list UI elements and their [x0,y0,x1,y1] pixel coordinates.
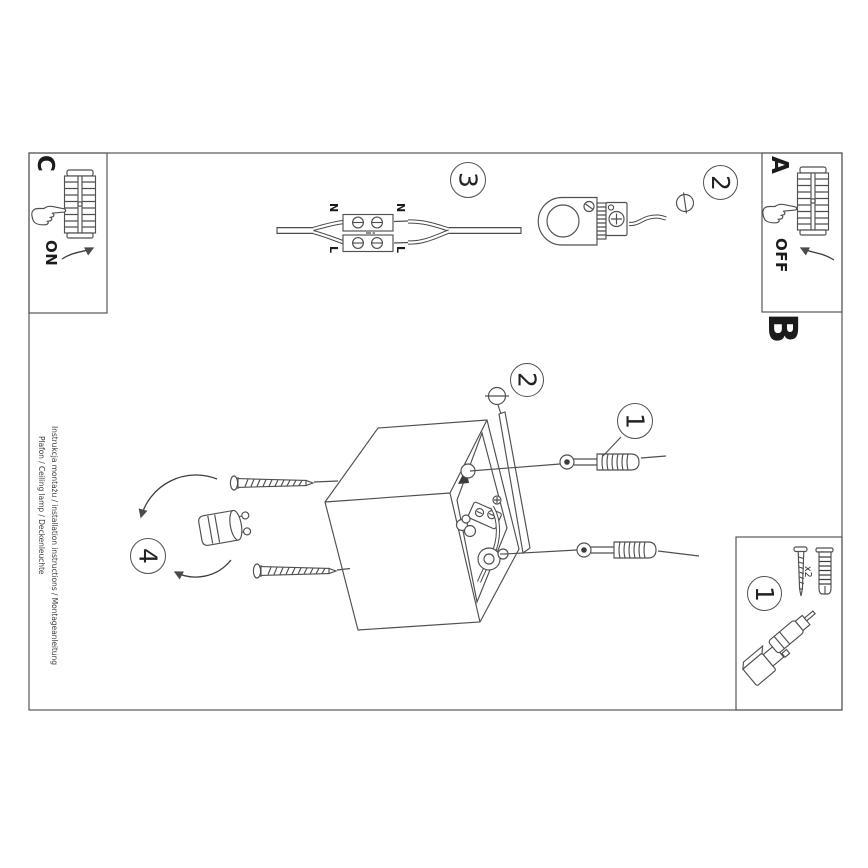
cube-lamp-exploded [141,388,699,631]
off-label: OFF [772,238,790,273]
caption-line-1: Instrukcja montażu / installation instru… [48,426,61,665]
turn-on-arrow-icon [62,248,93,259]
step-badge-1-parts: 1 [747,576,782,611]
rotate-arrow-icon [175,560,231,577]
wire-label-l-right: L [394,246,407,253]
step-badge-3: 3 [450,162,486,198]
step-badge-2: 2 [703,165,738,200]
screw-with-anchor-icon [577,542,656,558]
step-badge-2-cover: 2 [510,363,544,397]
sheet-caption: Instrukcja montażu / installation instru… [35,426,61,665]
bulb-icon [198,508,253,546]
wall-plug-icon [816,548,833,594]
turn-off-arrow-icon [801,248,834,260]
light-switch-icon [798,167,829,235]
section-label-c: C [32,155,58,172]
terminal-block-l [343,235,393,252]
drill-icon [740,607,827,686]
step-badge-1-anchor: 1 [617,403,653,439]
pointing-hand-icon [763,204,797,222]
mounting-screw-icon [230,476,313,490]
mounting-screw-icon [253,564,336,578]
caption-line-2: Plafon / Ceiling lamp / Deckenleuchte [35,426,48,665]
step-badge-4: 4 [130,538,166,574]
terminal-block-n [343,215,393,232]
section-label-b: B [759,313,805,344]
on-label: ON [42,240,60,266]
screw-icon [485,388,509,405]
step2-lamp-holder [538,193,693,246]
wire-label-l-left: L [327,246,340,253]
line-art [0,0,868,868]
quantity-label: x2 [802,566,813,578]
pointing-hand-icon [32,206,66,224]
light-switch-icon [65,170,96,238]
screw-with-anchor-icon [560,454,639,470]
screw-icon [677,193,694,214]
wire-label-n-right: N [394,203,407,212]
rotate-arrow-icon [141,475,217,517]
parts-box-contents [740,547,833,686]
wire-label-n-left: N [327,203,340,212]
section-label-a: A [766,156,792,174]
instruction-sheet: C ON A OFF B N N L L x2 2 3 2 1 4 1 Inst… [0,0,868,868]
